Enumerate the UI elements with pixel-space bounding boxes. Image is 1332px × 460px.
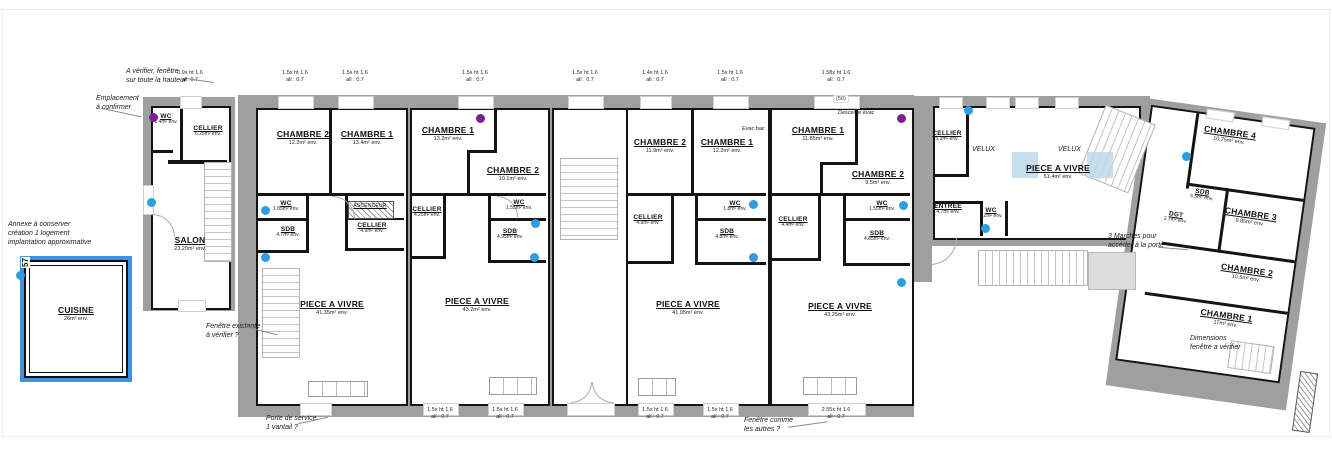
room-label: WC1.55m² env. [869,200,895,213]
wall [345,248,404,251]
room-label: CELLIER4.9m² env. [357,222,386,235]
room-label: CHAMBRE 113.2m² env. [422,126,474,142]
room-label: PIECE A VIVRE41.95m² env. [656,300,720,316]
window [180,96,202,109]
window-dim-label: 1.5x ht 1.6 all : 0.7 [427,407,453,420]
room-label: CHAMBRE 212.2m² env. [277,130,329,146]
annotation-dimensions: Dimensions fenêtre a vérifier [1190,335,1241,353]
window [338,96,374,109]
room-label: CHAMBRE 112.2m² env. [701,138,753,154]
room-label: CHAMBRE 29.5m² env. [852,170,904,186]
wall [626,261,674,264]
wall [843,263,910,266]
kitchen-counter [489,377,537,395]
wall [488,193,491,263]
wall [695,193,698,263]
wall [966,106,969,176]
stairs-unit-b [262,268,300,358]
annex-cuisine-block[interactable]: CUISINE26m² env. [20,256,132,382]
room-label-cuisine: CUISINE26m² env. [58,306,94,322]
purple-marker-dot[interactable] [149,113,158,122]
wall [822,162,858,165]
unit-e-interior [770,108,914,406]
dimension-57: 57 [21,257,30,268]
room-label: WC1.2m² env. [979,207,1002,220]
wall [151,150,173,153]
annotation-evac: Evac bac [742,126,765,133]
unit-b-interior [256,108,408,406]
blue-marker-dot[interactable] [749,253,758,262]
stairs-central [560,158,618,240]
room-label: CELLIER4.25m² env. [412,206,441,219]
blue-marker-dot[interactable] [749,200,758,209]
window [986,97,1010,109]
wall [1005,201,1008,236]
room-label: SDB4.85m² env. [864,230,890,243]
page-edge-left [2,9,3,437]
blue-marker-dot[interactable] [964,106,973,115]
wall [467,150,470,196]
purple-marker-dot[interactable] [476,114,485,123]
room-label: CELLIER6.25m² env. [193,125,222,138]
room-label: SDB4.95m² env. [497,228,523,241]
velux-label: VELUX [972,146,995,153]
window [713,96,749,109]
wall-section-hatch [1292,371,1318,433]
room-label: WC1.4m² env. [154,113,177,126]
blue-marker-dot[interactable] [897,278,906,287]
blue-marker-dot[interactable] [261,253,270,262]
wall [671,193,674,263]
wall [843,193,846,263]
room-label: WC1.55m² env. [506,199,532,212]
stairwell-interior [552,108,628,406]
window [178,300,206,312]
room-label: PIECE A VIVRE41.35m² env. [300,300,364,316]
blue-marker-dot[interactable] [899,201,908,210]
annotation-verify-window: A vérifier, fenêtre sur toute la hauteur [126,68,186,86]
room-label: ENTREE4.7m² env. [934,203,962,216]
annotation-descente-evac: Descente évac [838,110,874,117]
velux-label: VELUX [1058,146,1081,153]
window-dim-label: 1.5x ht 1.6 all : 0.7 [642,407,668,420]
wall [695,262,766,265]
wall [329,108,332,193]
room-label: PIECE A VIVRE43.25m² env. [808,302,872,318]
page-edge-bottom [0,436,1332,437]
room-label: CHAMBRE 210.1m² env. [487,166,539,182]
window-dim-label: 1.5x ht 1.6 all : 0.7 [707,407,733,420]
window [568,96,604,109]
page-edge-top [0,9,1332,10]
kitchen-counter [308,381,368,397]
wall [770,258,821,261]
window-dim-label: 2.55x ht 1.6 all : 0.7 [822,407,851,420]
velux-skylight [1087,152,1113,178]
room-label: SDB4.7m² env. [276,226,299,239]
annotation-same-window: Fenêtre comme les autres ? [744,417,793,435]
dimension-50: (50) [833,95,849,103]
wall [933,174,969,177]
room-label: CHAMBRE 111.85m² env. [792,126,844,142]
blue-marker-dot[interactable] [531,219,540,228]
room-label-elevator: ASCENCEUR [353,204,386,210]
wall [410,193,546,196]
room-label: WC1.85m² env. [273,200,299,213]
wall [697,218,766,221]
leader-line [788,421,828,428]
room-label: SDB4.8m² env. [715,228,738,241]
window-dim-label: 1.5x ht 1.6 all : 0.7 [342,70,368,83]
window-dim-label: 1.5x ht 1.6 all : 0.7 [572,70,598,83]
kitchen-counter [803,377,857,395]
room-label: CELLIER4.9m² env. [633,214,662,227]
wall [256,218,308,221]
wall [770,193,910,196]
room-label: CELLIER5.3m² env. [932,130,961,143]
annotation-steps: 3 Marches pour accéder à la porte [1108,233,1164,251]
window [278,96,314,109]
blue-marker-dot[interactable] [16,271,25,280]
window [1055,97,1079,109]
blue-marker-dot[interactable] [981,224,990,233]
wall [820,162,823,196]
door-opening [567,403,615,416]
wall [306,193,309,253]
door-arc [930,238,957,265]
room-label: CELLIER4.4m² env. [778,216,807,229]
exterior-landing [1088,252,1136,290]
stairs-unit-a [204,162,232,262]
blue-marker-dot[interactable] [261,206,270,215]
room-label: WC1.8m² env. [723,200,746,213]
room-label: SALON23.20m² env. [174,236,206,252]
window-dim-label: 1.5x ht 1.6 all : 0.7 [462,70,488,83]
annotation-service-door: Porte de service 1 vantail ? [266,415,317,433]
blue-marker-dot[interactable] [147,198,156,207]
window-dim-label: 1.58x ht 1.6 all : 0.7 [822,70,851,83]
wall [256,193,404,196]
purple-marker-dot[interactable] [897,114,906,123]
floor-plan-canvas: CHAMBRE 410.75m² env. SDB5.5m² env. DGT2… [0,0,1332,460]
blue-marker-dot[interactable] [1182,152,1191,161]
wall [467,150,497,153]
window-dim-label: 1.5x ht 1.6 all : 0.7 [492,407,518,420]
room-label: CHAMBRE 211.9m² env. [634,138,686,154]
window-dim-label: 1.5x ht 1.6 all : 0.7 [282,70,308,83]
window [458,96,494,109]
window [939,97,963,109]
window [1015,97,1039,109]
annotation-existing-window: Fenêtre existante à vérifier ? [206,323,260,341]
annotation-emplacement: Emplacement à confirmer [96,95,139,113]
wall [180,106,183,162]
wall [410,256,446,259]
window-dim-label: 1.5x ht 1.6 all : 0.7 [717,70,743,83]
wall [691,108,694,196]
window [640,96,672,109]
room-label: PIECE A VIVRE43.2m² env. [445,297,509,313]
wall [494,108,497,153]
annotation-annex: Annexe à conserver création 1 logement i… [8,221,91,247]
page-edge-right [1329,9,1330,437]
blue-marker-dot[interactable] [530,253,539,262]
room-label: CHAMBRE 113.4m² env. [341,130,393,146]
wall [843,218,910,221]
stairs-exterior [978,250,1088,286]
room-label: PIECE A VIVRE51.4m² env. [1026,164,1090,180]
wall [443,193,446,258]
wall [818,193,821,261]
window-dim-label: 1.4x ht 1.6 all : 0.7 [642,70,668,83]
kitchen-counter [638,378,676,396]
